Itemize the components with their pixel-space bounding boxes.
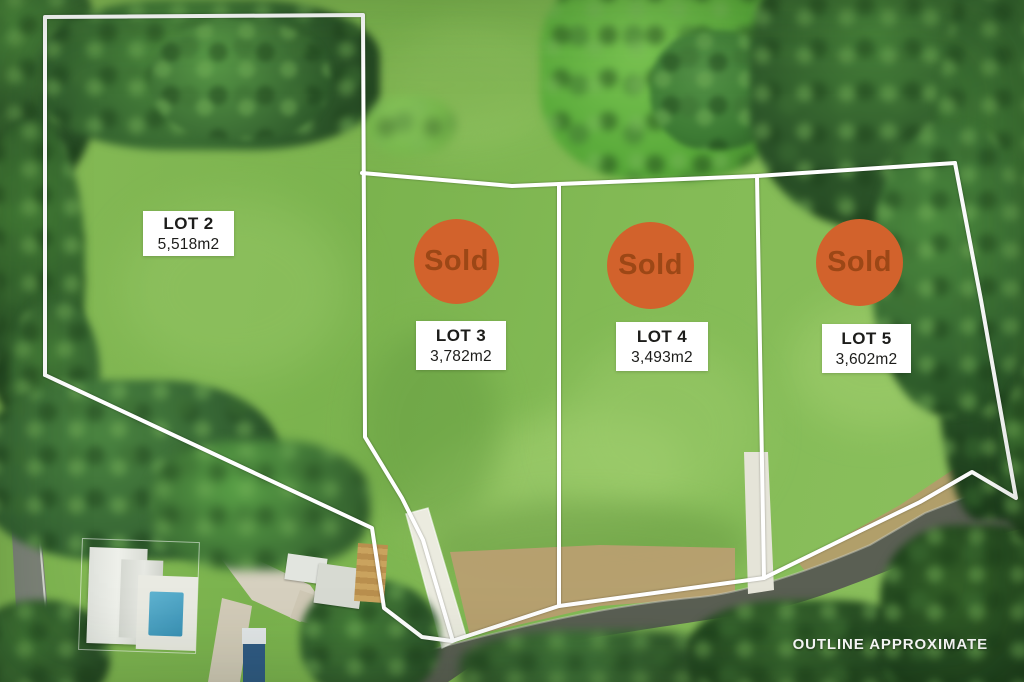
lot4-sold-text: Sold	[618, 249, 683, 282]
lot5-area: 3,602m2	[822, 351, 911, 369]
outline-approximate-watermark: OUTLINE APPROXIMATE	[793, 636, 988, 653]
lot2-label: LOT 2 5,518m2	[143, 211, 234, 256]
lot5-name: LOT 5	[822, 329, 911, 349]
lot2-area: 5,518m2	[143, 236, 234, 254]
lot4-sold-badge: Sold	[607, 222, 694, 309]
lot4-label: LOT 4 3,493m2	[616, 322, 708, 371]
lot5-label: LOT 5 3,602m2	[822, 324, 911, 373]
lots-south-east-boundary	[452, 163, 1016, 641]
lot3-sold-text: Sold	[424, 245, 489, 278]
lot2-south-boundary	[45, 375, 452, 641]
lot2-name: LOT 2	[143, 214, 234, 234]
lot5-sold-text: Sold	[827, 246, 892, 279]
lot4-name: LOT 4	[616, 327, 708, 347]
lot3-sold-badge: Sold	[414, 219, 499, 304]
lot4-lot5-divider	[757, 176, 764, 578]
lot3-area: 3,782m2	[416, 348, 506, 366]
lot3-name: LOT 3	[416, 326, 506, 346]
lot2-boundary	[45, 15, 452, 638]
aerial-photo: LOT 2 5,518m2 LOT 3 3,782m2 LOT 4 3,493m…	[0, 0, 1024, 682]
lots-north-boundary	[362, 163, 955, 186]
lot5-sold-badge: Sold	[816, 219, 903, 306]
lot4-area: 3,493m2	[616, 349, 708, 367]
lot3-label: LOT 3 3,782m2	[416, 321, 506, 370]
